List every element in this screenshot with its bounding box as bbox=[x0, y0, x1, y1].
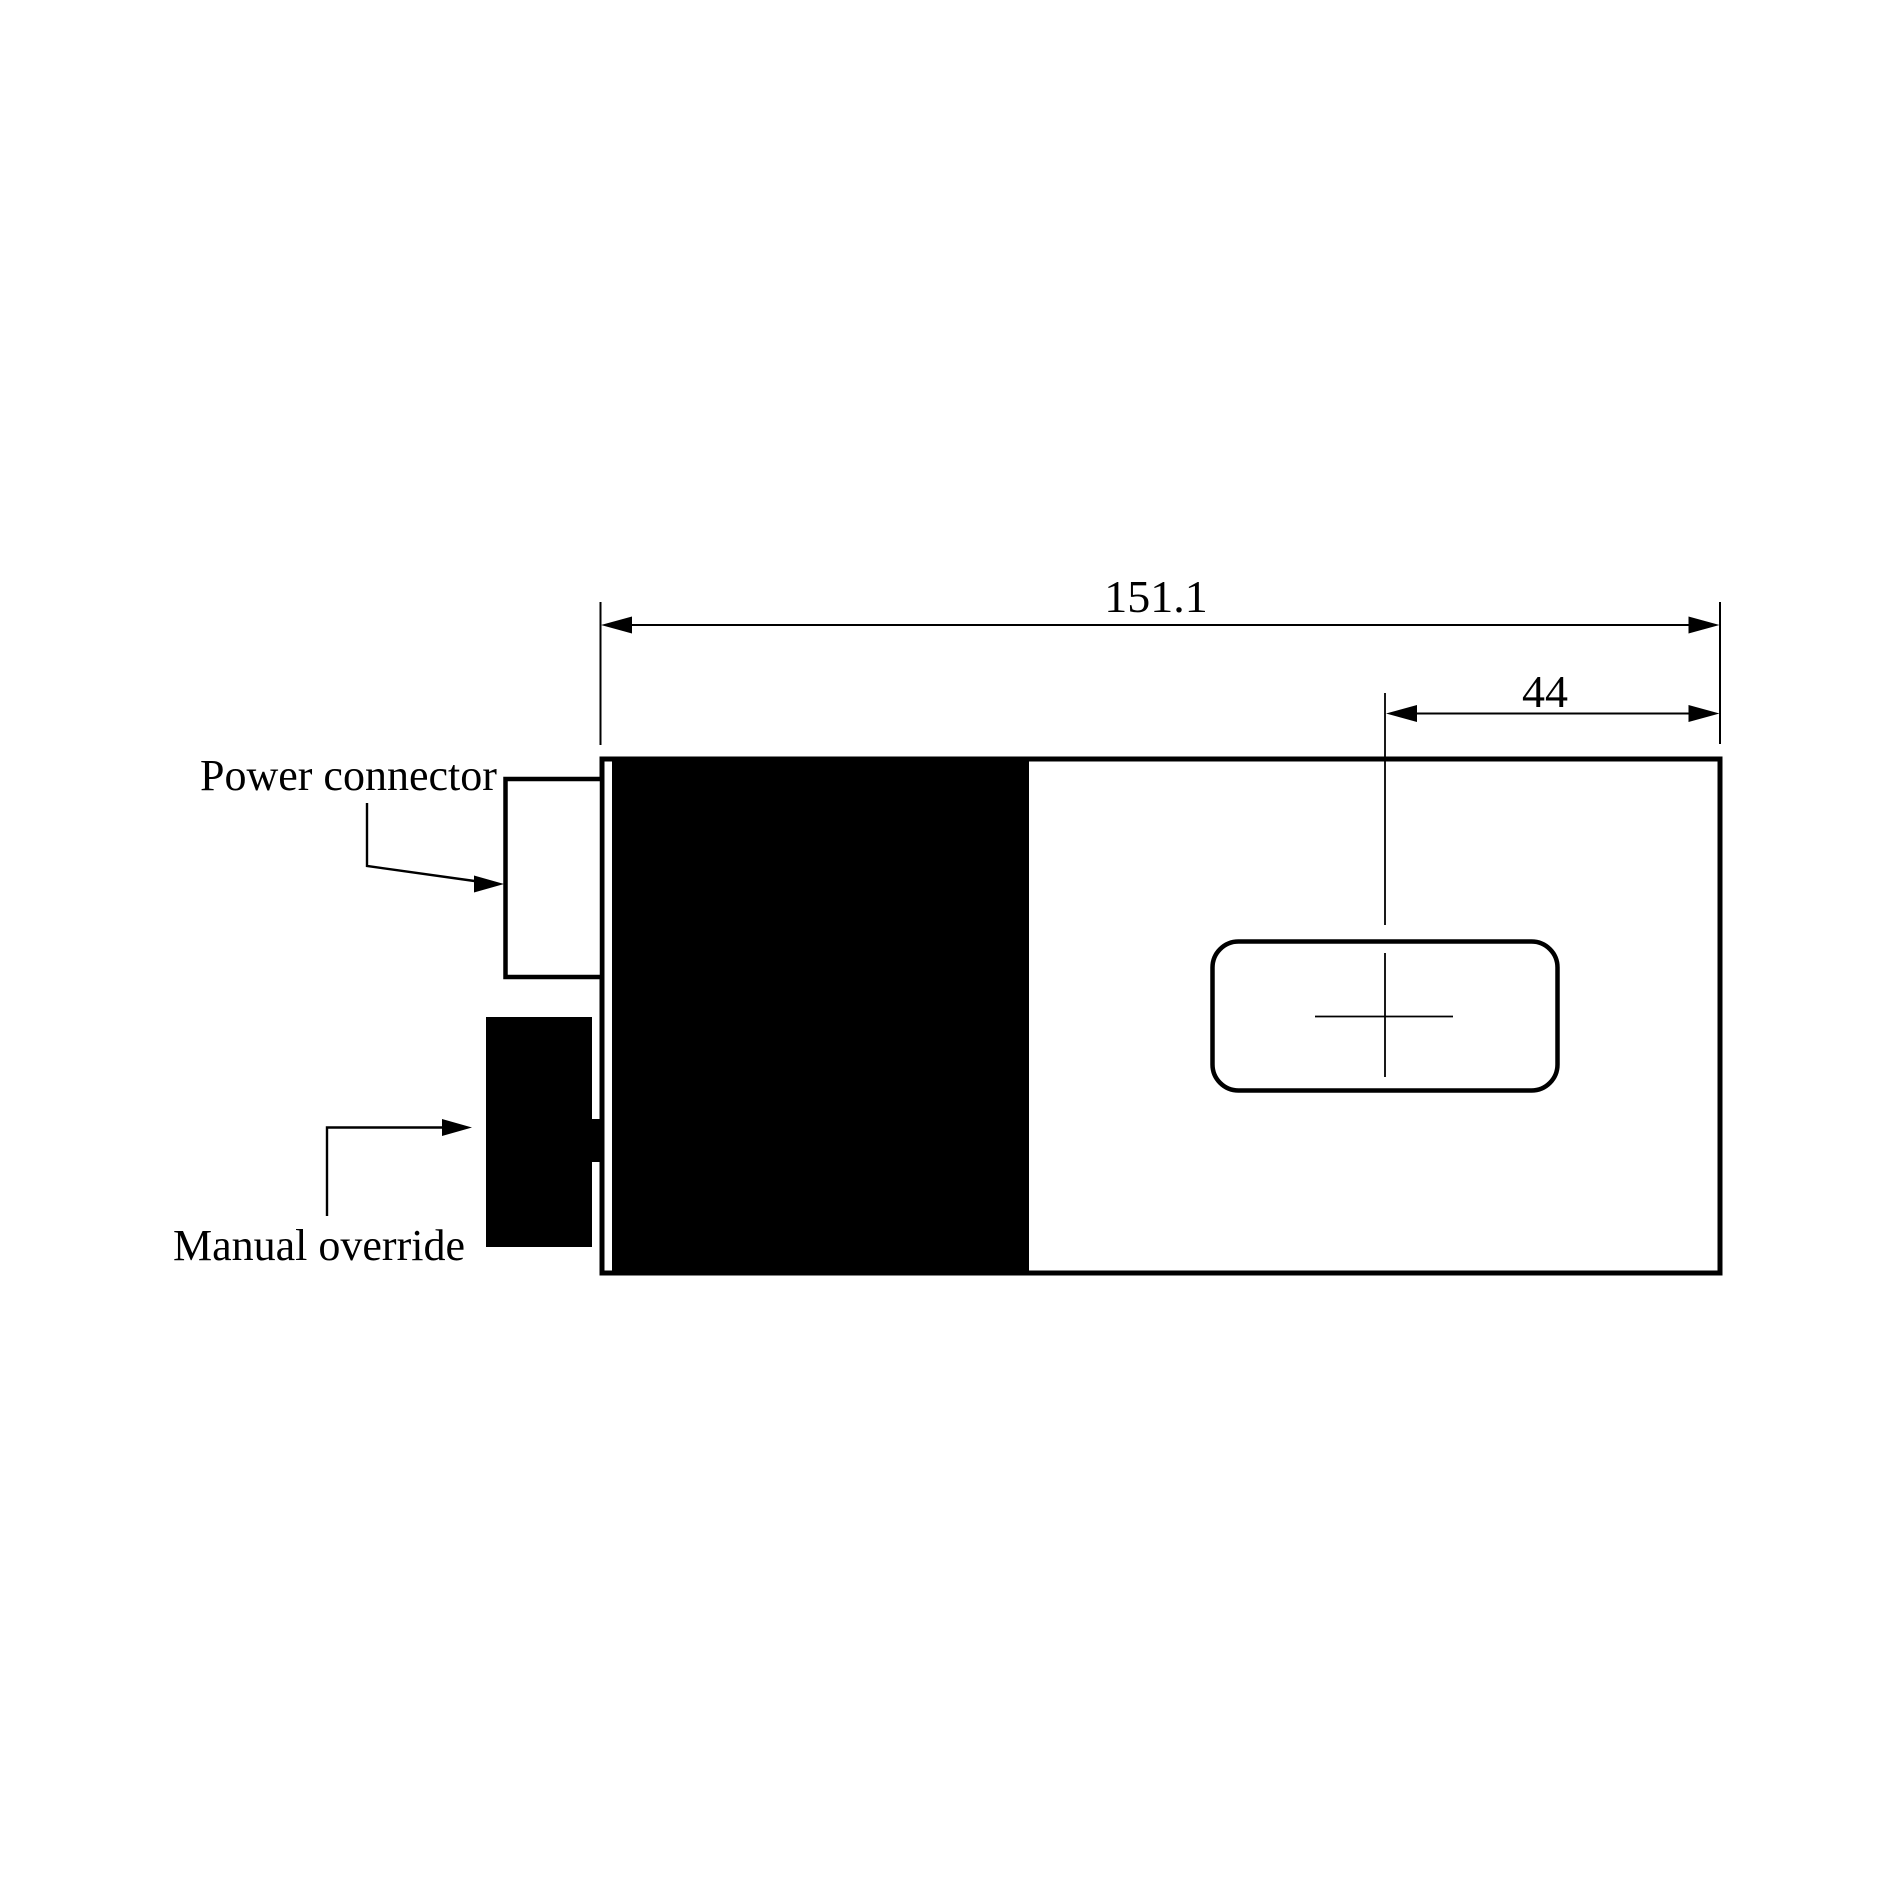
power-connector-label: Power connector bbox=[200, 751, 497, 800]
leader-arrowhead-icon bbox=[474, 876, 504, 893]
manual-override-leader-line bbox=[327, 1128, 447, 1217]
power-connector-body bbox=[506, 779, 603, 977]
actuator-side-view bbox=[486, 757, 1720, 1275]
overall-length-value: 151.1 bbox=[1104, 571, 1208, 622]
slot-offset-value: 44 bbox=[1522, 666, 1568, 717]
manual-override-knob bbox=[486, 1017, 592, 1247]
arrowhead-right-icon bbox=[1689, 617, 1720, 634]
power-connector-callout: Power connector bbox=[200, 751, 504, 893]
manual-override-label: Manual override bbox=[173, 1221, 465, 1270]
dimension-slot-offset: 44 bbox=[1386, 666, 1720, 722]
arrowhead-left-icon bbox=[1386, 705, 1417, 722]
motor-section-fill bbox=[612, 757, 1029, 1275]
manual-override-shaft bbox=[590, 1119, 604, 1162]
arrowhead-left-icon bbox=[601, 617, 632, 634]
arrowhead-right-icon bbox=[1689, 705, 1720, 722]
manual-override-callout: Manual override bbox=[173, 1119, 472, 1270]
dimension-overall-length: 151.1 bbox=[601, 571, 1721, 745]
technical-drawing-canvas: 151.1 44 Power connector Manual override bbox=[0, 0, 1900, 1900]
leader-arrowhead-icon bbox=[442, 1119, 472, 1136]
power-connector-leader-line bbox=[367, 803, 478, 882]
